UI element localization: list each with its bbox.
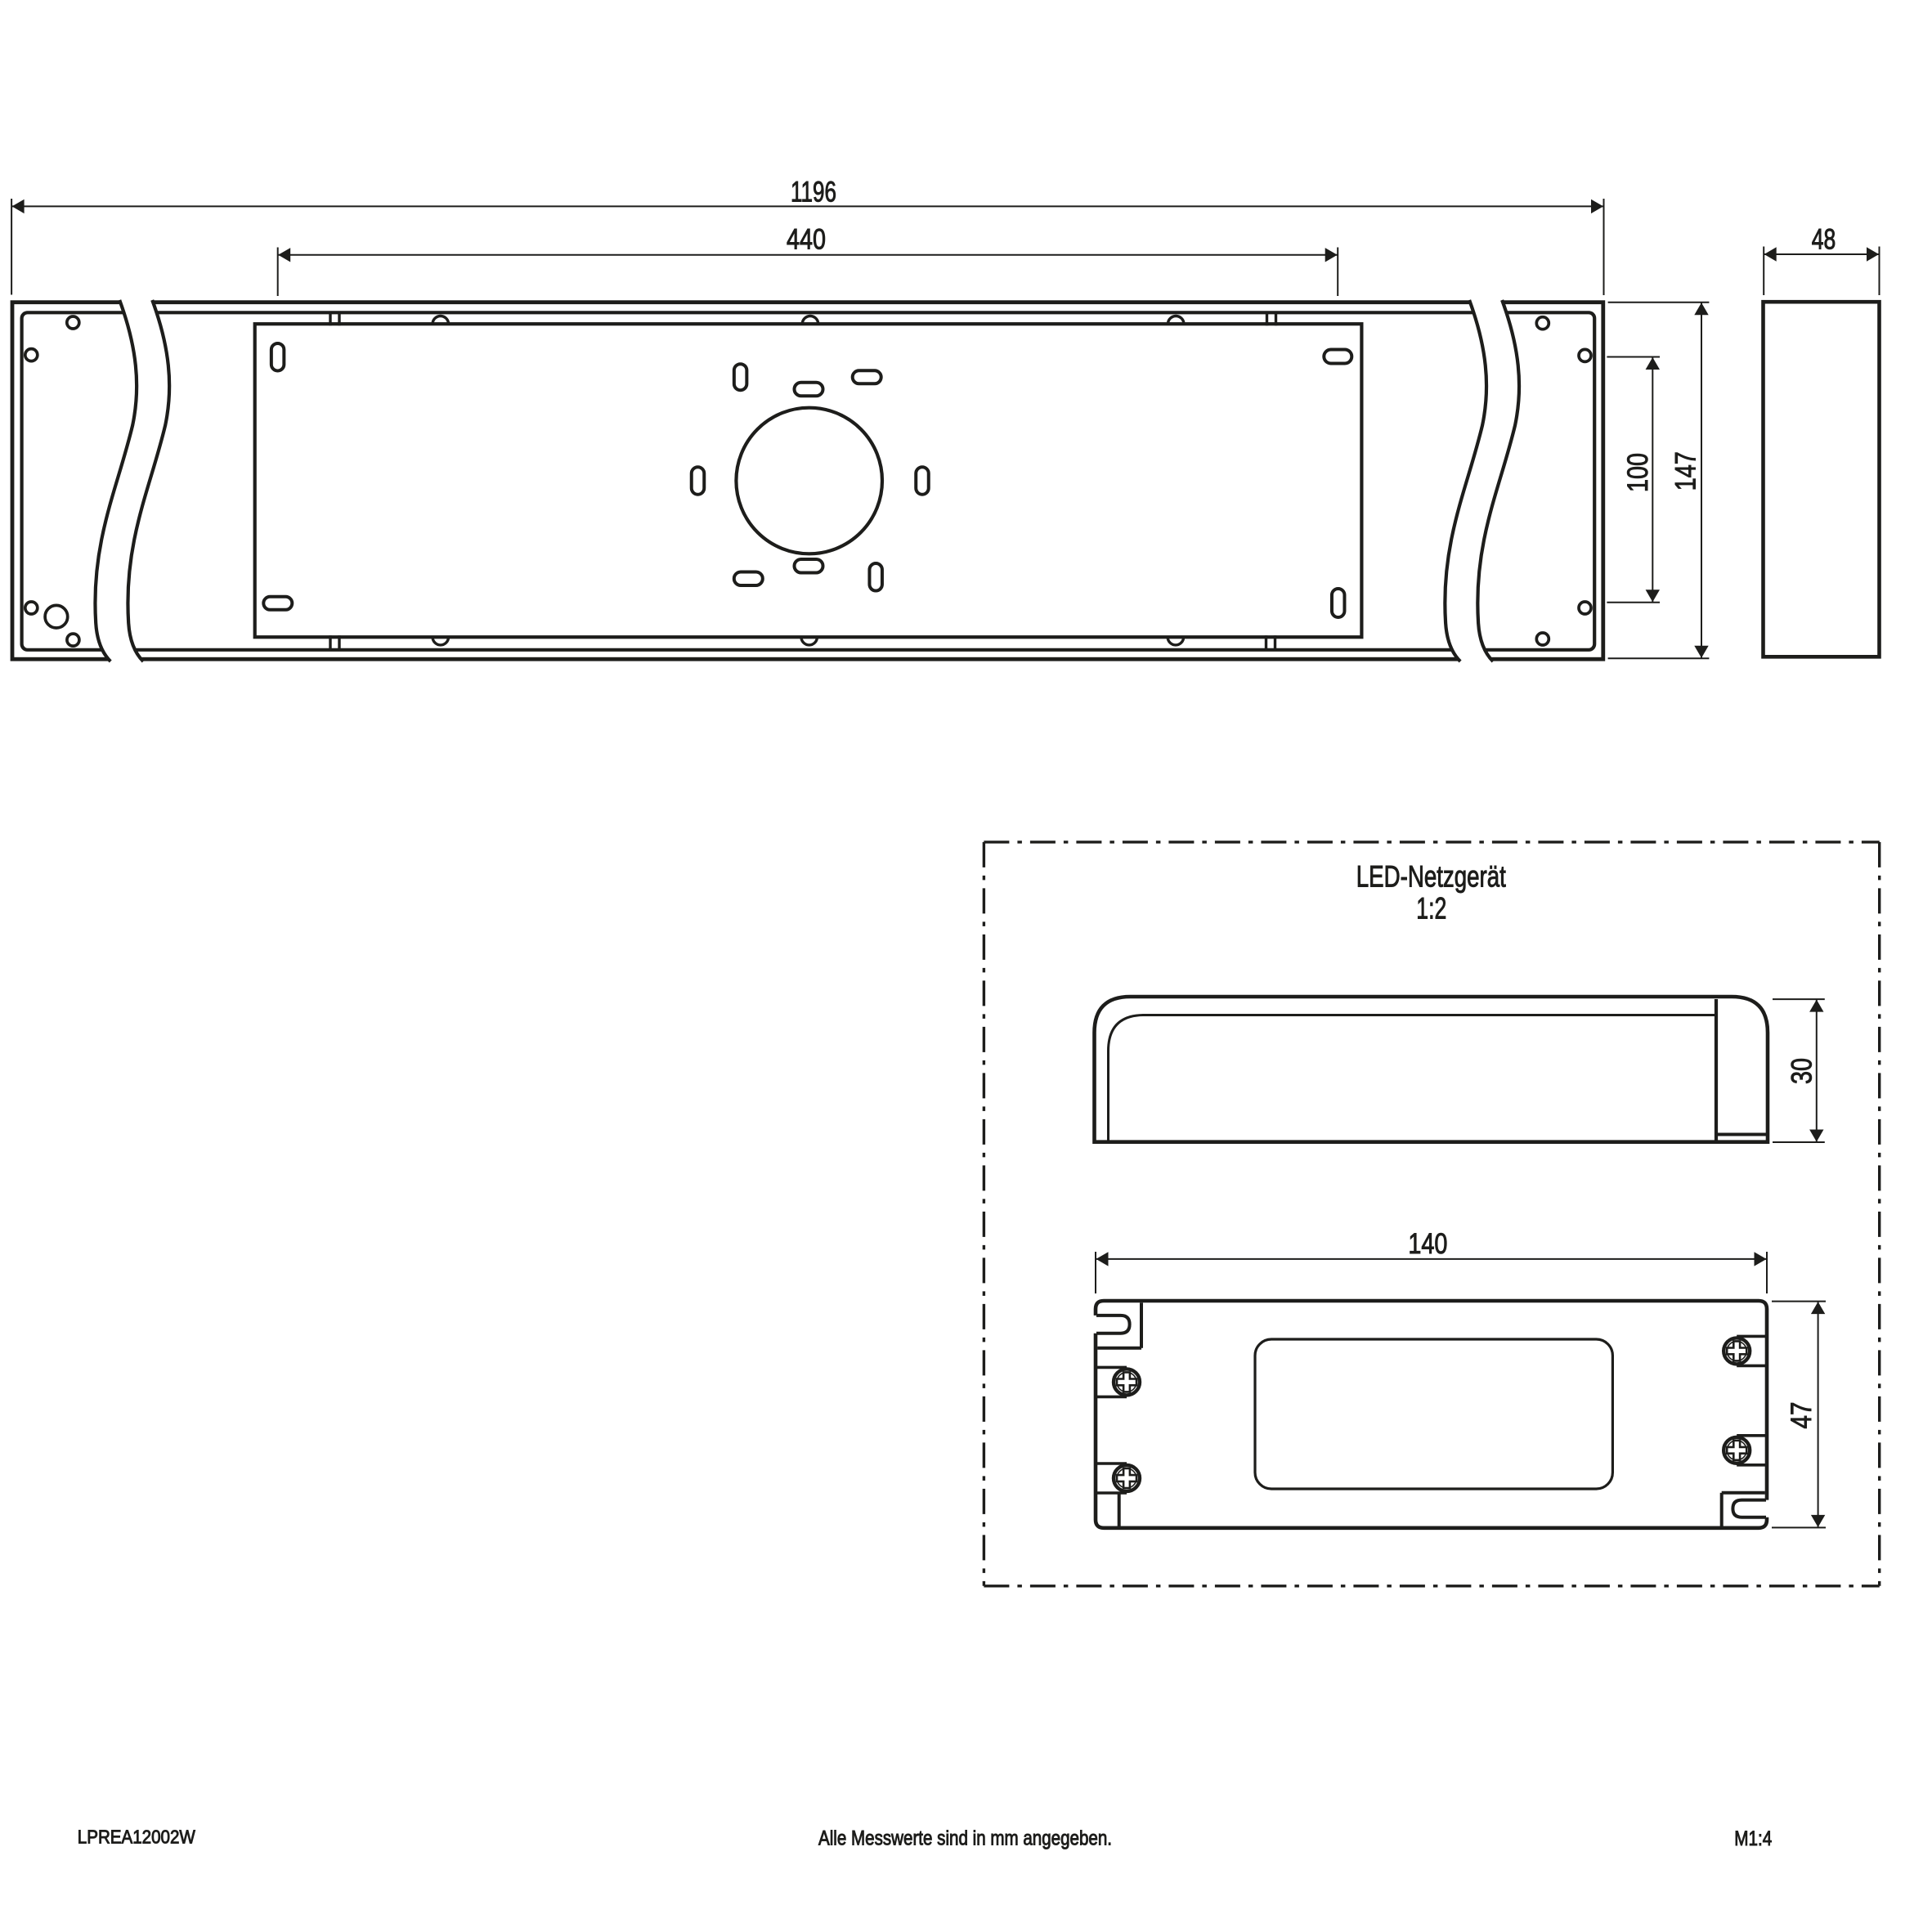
svg-text:M1:4: M1:4 — [1734, 1827, 1772, 1850]
svg-text:30: 30 — [1786, 1058, 1818, 1084]
svg-text:100: 100 — [1621, 453, 1654, 492]
svg-text:1196: 1196 — [791, 176, 836, 208]
svg-text:48: 48 — [1812, 223, 1836, 256]
svg-text:47: 47 — [1785, 1402, 1818, 1429]
svg-text:LPREA12002W: LPREA12002W — [78, 1827, 195, 1848]
svg-text:140: 140 — [1408, 1227, 1447, 1260]
svg-text:1:2: 1:2 — [1416, 892, 1446, 926]
svg-text:147: 147 — [1670, 451, 1702, 491]
svg-text:Alle Messwerte sind in mm ange: Alle Messwerte sind in mm angegeben. — [818, 1827, 1112, 1850]
svg-text:440: 440 — [787, 223, 826, 256]
svg-text:LED-Netzgerät: LED-Netzgerät — [1356, 860, 1507, 894]
